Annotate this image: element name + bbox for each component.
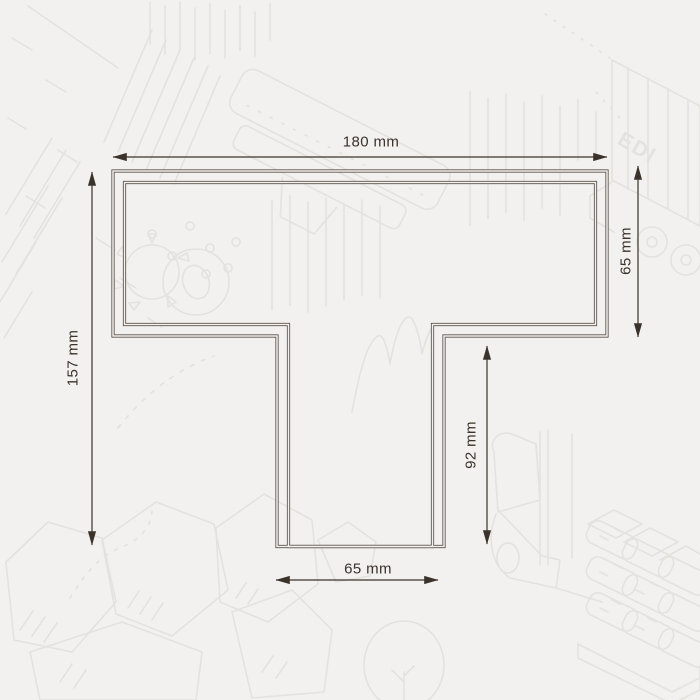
doodle-spiky-wheel <box>125 245 179 299</box>
doodle-diagonal-line <box>28 6 118 68</box>
dimension-lines <box>92 157 638 580</box>
doodle-hatch-band-upper <box>104 30 220 184</box>
background-doodles: EDI <box>0 2 700 700</box>
doodle-roller-hub <box>178 262 213 302</box>
dim-label-left-total-height: 157 mm <box>65 330 82 387</box>
doodle-truck-text: EDI <box>614 128 661 168</box>
dim-label-top-width: 180 mm <box>343 134 400 151</box>
dim-label-right-flange-height: 65 mm <box>618 227 635 275</box>
dim-label-stem-width: 65 mm <box>344 561 392 578</box>
doodle-forklift <box>491 430 602 602</box>
technical-drawing-svg: EDI <box>0 0 700 700</box>
doodle-hatch-band-left <box>0 138 80 338</box>
doodle-vertical-hatch-bar <box>272 92 596 312</box>
doodle-roller-drum <box>163 249 229 315</box>
doodle-rocks <box>6 494 376 700</box>
doodle-circle <box>364 621 444 700</box>
doodle-vertical-hatch-top <box>150 2 270 60</box>
drawing-canvas: EDI <box>0 0 700 700</box>
dim-label-stem-height: 92 mm <box>463 421 480 469</box>
doodle-hills <box>352 317 435 412</box>
profile-inner-contour-gap <box>125 183 596 547</box>
profile-inner-contour <box>125 183 596 547</box>
doodle-bag-stack <box>578 510 700 700</box>
doodle-dashed-trail <box>118 356 214 428</box>
